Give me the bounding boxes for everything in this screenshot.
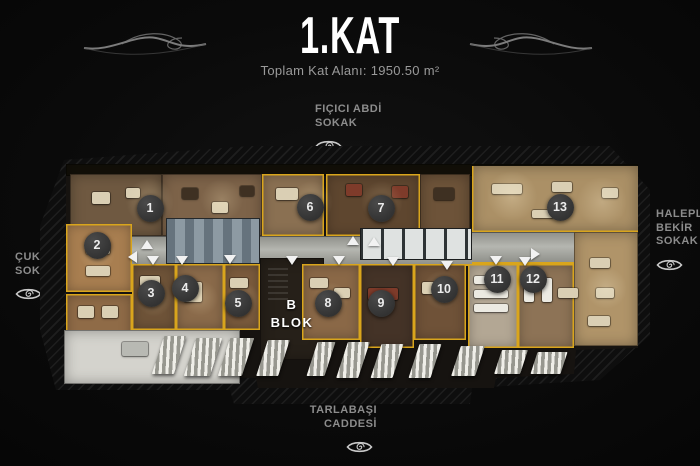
street-label-line: SOKAK <box>656 235 700 249</box>
block-label-line: BLOK <box>260 314 324 332</box>
door-arrow-right <box>531 248 540 260</box>
street-label-line: TARLABAŞI <box>277 404 377 418</box>
room-marker-8[interactable]: 8 <box>315 290 342 317</box>
furniture-table <box>276 188 298 200</box>
eye-icon[interactable] <box>656 257 683 273</box>
furniture-table <box>596 288 614 298</box>
furniture-table <box>122 342 148 356</box>
door-arrow-left <box>128 251 137 263</box>
furniture-table <box>588 316 610 326</box>
room-marker-11[interactable]: 11 <box>484 266 511 293</box>
furniture-table <box>212 202 228 213</box>
furniture-table <box>126 188 140 198</box>
stairs <box>268 266 288 300</box>
eye-icon[interactable] <box>346 439 373 455</box>
street-label-line: HALEPLİ <box>656 208 700 222</box>
room-marker-9[interactable]: 9 <box>368 290 395 317</box>
room-marker-4[interactable]: 4 <box>172 275 199 302</box>
furniture-table <box>346 184 362 196</box>
floorplan-page: 1.KAT Toplam Kat Alanı: 1950.50 m² FIÇIC… <box>0 0 700 466</box>
furniture-table <box>552 182 572 192</box>
furniture-table <box>78 306 94 318</box>
door-arrow-down <box>333 256 345 265</box>
street-label-tarlabasi-caddesi: TARLABAŞI CADDESİ <box>277 404 377 460</box>
door-arrow-down <box>441 261 453 270</box>
flourish-icon <box>468 22 594 62</box>
room-marker-3[interactable]: 3 <box>138 280 165 307</box>
furniture-table <box>558 288 578 298</box>
furniture-table <box>492 184 522 194</box>
door-arrow-down <box>387 257 399 266</box>
furniture-table <box>182 188 198 199</box>
floor-area-subtitle: Toplam Kat Alanı: 1950.50 m² <box>0 63 700 78</box>
furniture-table <box>102 306 118 318</box>
street-label-halepli-bekir-sokak: HALEPLİ BEKİR SOKAK <box>656 208 700 277</box>
eye-icon[interactable] <box>15 286 42 302</box>
door-arrow-down <box>286 256 298 265</box>
door-arrow-down <box>519 257 531 266</box>
room-marker-12[interactable]: 12 <box>520 266 547 293</box>
room-marker-6[interactable]: 6 <box>297 194 324 221</box>
room-marker-5[interactable]: 5 <box>225 290 252 317</box>
furniture-desk <box>474 304 508 312</box>
flourish-icon <box>82 22 208 62</box>
floor-plan: B BLOK 12345678910111213 <box>62 158 642 390</box>
street-label-line: SOKAK <box>315 117 382 131</box>
door-arrow-down <box>490 256 502 265</box>
furniture-table <box>434 188 454 200</box>
street-label-line: FIÇICI ABDİ <box>315 103 382 117</box>
door-arrow-down <box>147 256 159 265</box>
door-arrow-up <box>347 236 359 245</box>
room-marker-7[interactable]: 7 <box>368 195 395 222</box>
street-label-line: BEKİR <box>656 222 700 236</box>
room-marker-2[interactable]: 2 <box>84 232 111 259</box>
door-arrow-down <box>224 255 236 264</box>
furniture-table <box>230 278 248 288</box>
room-zone-7b <box>420 174 470 236</box>
furniture-table <box>310 278 328 288</box>
furniture-table <box>590 258 610 268</box>
door-arrow-up <box>141 240 153 249</box>
furniture-table <box>86 266 110 276</box>
street-label-line: CADDESİ <box>277 418 377 432</box>
door-arrow-down <box>176 256 188 265</box>
room-marker-10[interactable]: 10 <box>431 276 458 303</box>
furniture-table <box>602 188 618 198</box>
room-marker-13[interactable]: 13 <box>547 194 574 221</box>
furniture-table <box>240 186 254 196</box>
room-marker-1[interactable]: 1 <box>137 195 164 222</box>
furniture-table <box>92 192 110 204</box>
furniture-table <box>392 186 408 198</box>
door-arrow-up <box>368 237 380 246</box>
